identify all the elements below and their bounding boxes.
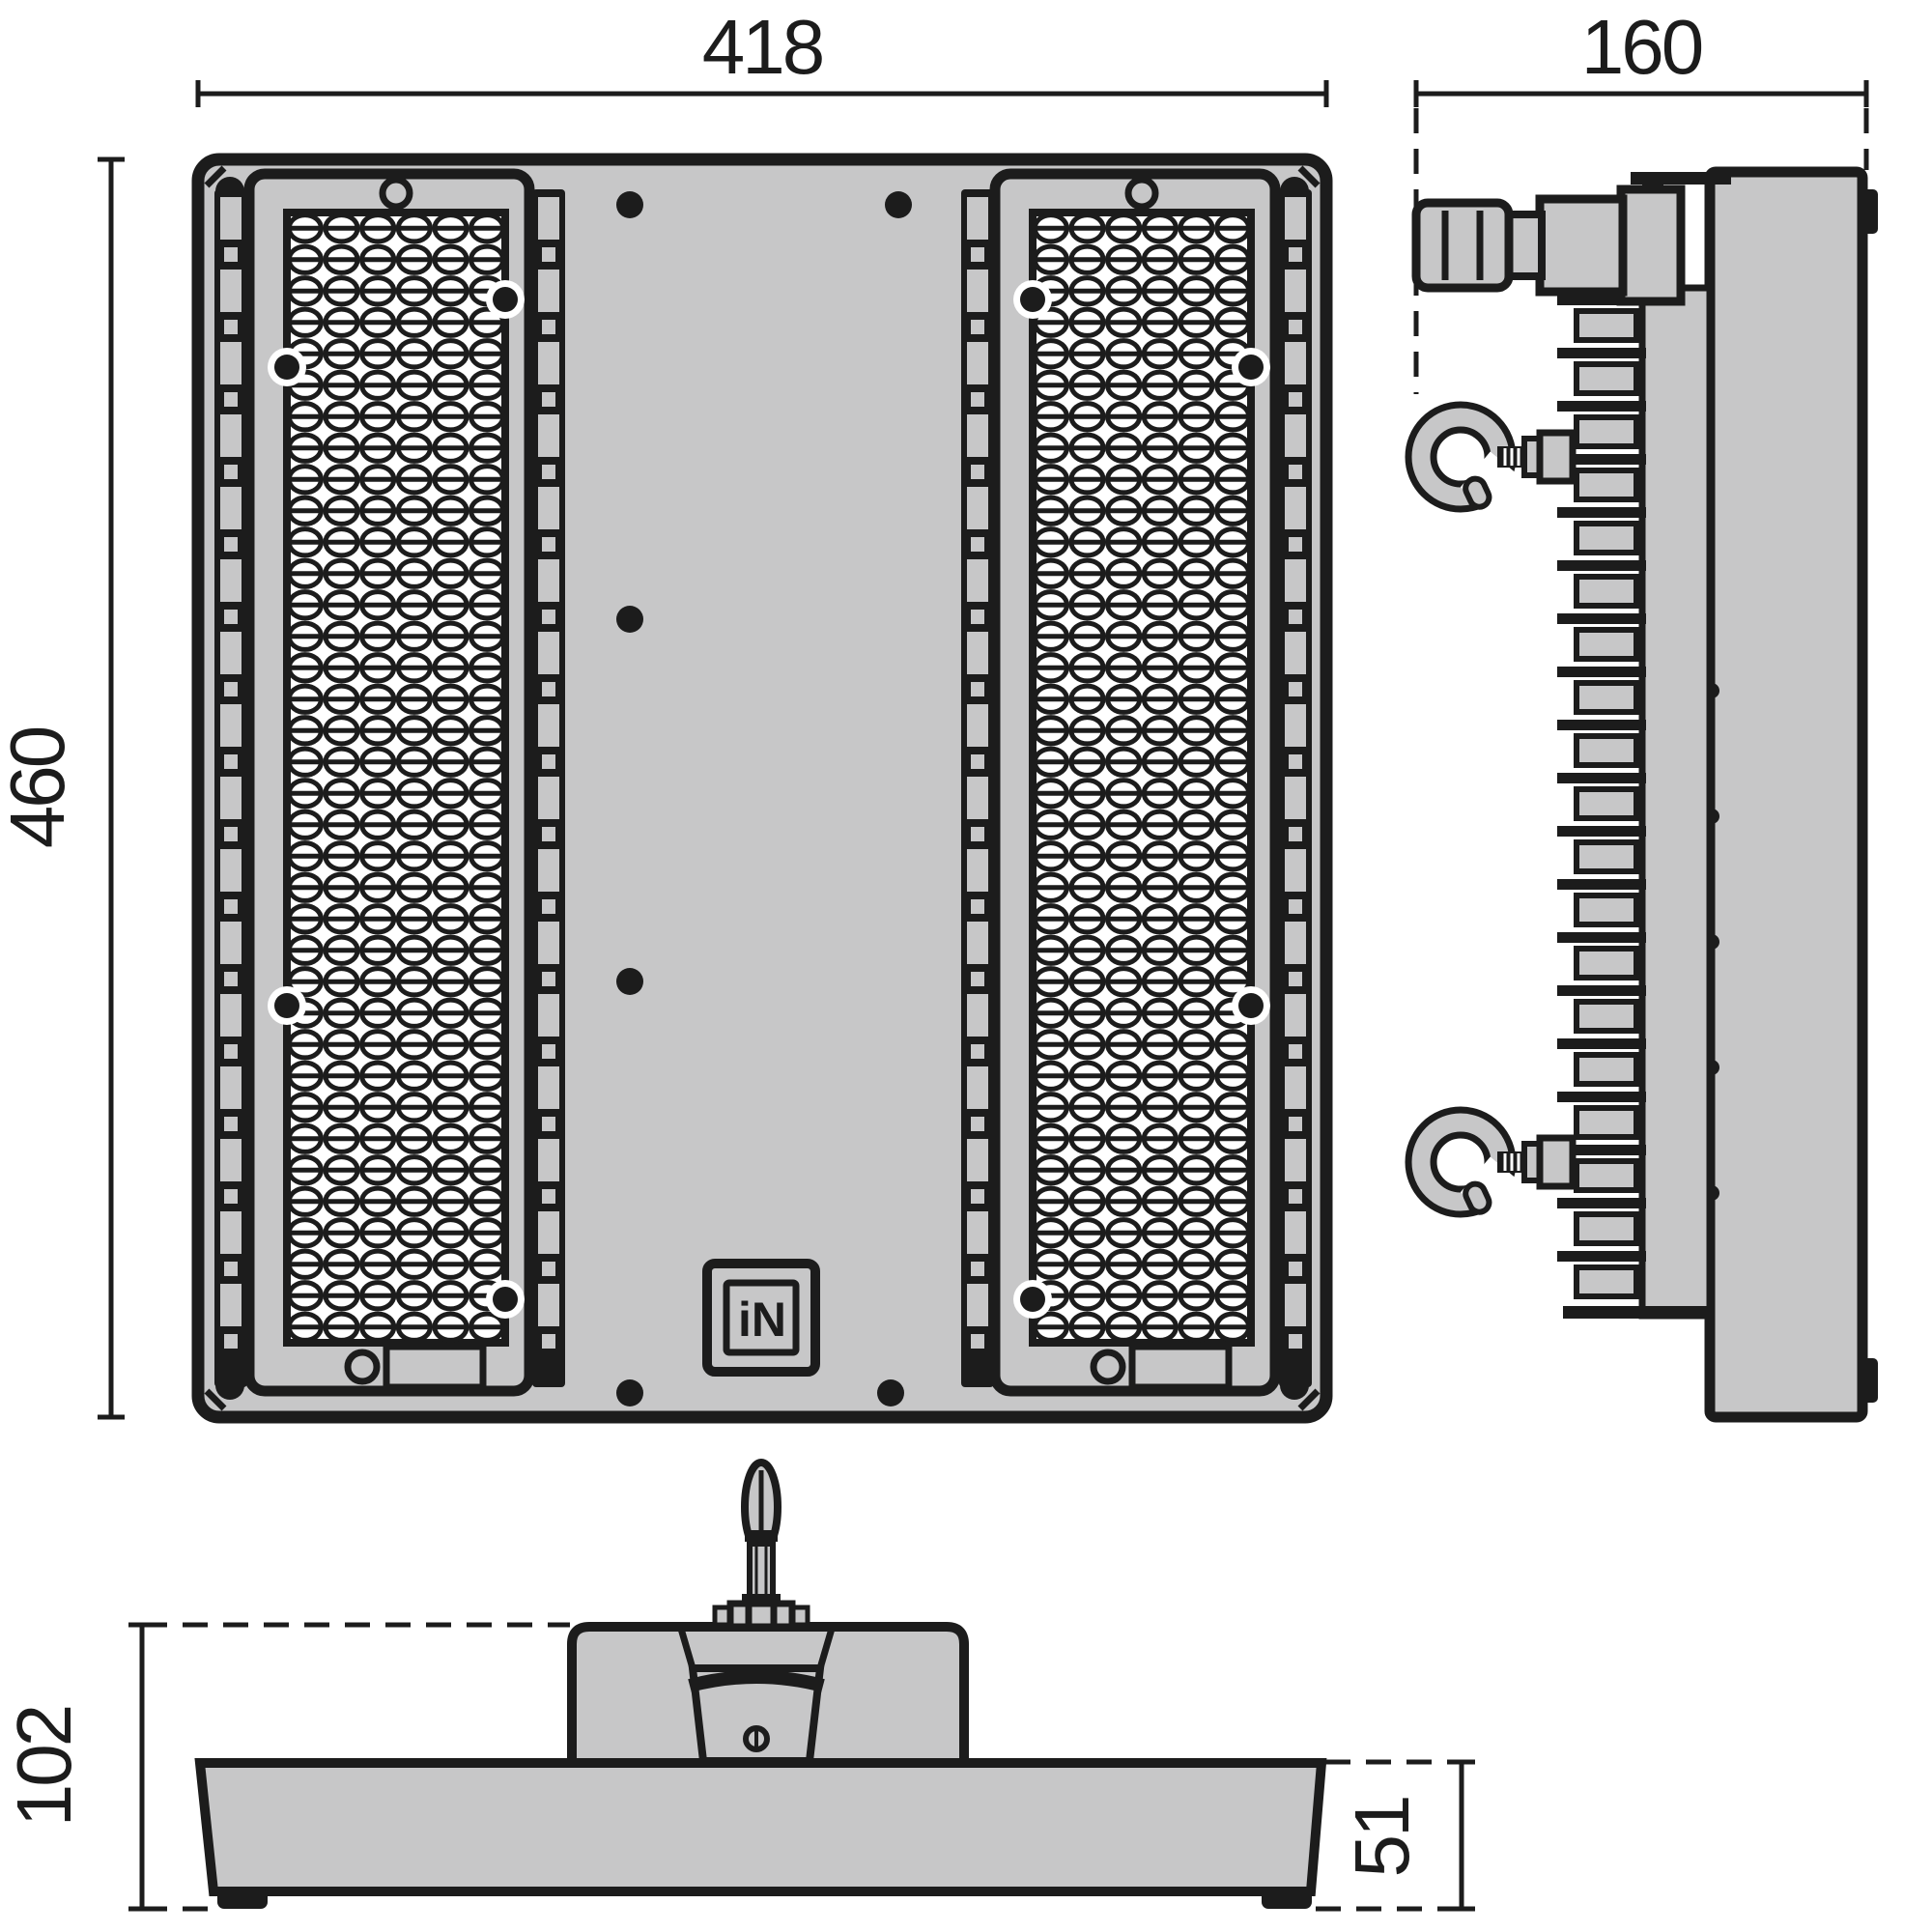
fin xyxy=(1557,348,1646,358)
rail-clip-small xyxy=(1289,320,1302,334)
gland-nut xyxy=(1416,203,1509,288)
side-tab-bottom xyxy=(1859,1358,1878,1403)
rail-clip-small xyxy=(1289,754,1302,769)
rail-clip xyxy=(1285,994,1306,1037)
rail-clip-small xyxy=(542,1117,555,1131)
rail-clip-small xyxy=(1289,1117,1302,1131)
dim-profile-body-height: 51 xyxy=(1316,1762,1475,1909)
fin xyxy=(1557,720,1646,730)
profile-body xyxy=(200,1763,1321,1891)
rail-clip-small xyxy=(1289,610,1302,624)
fin-block xyxy=(1577,470,1636,499)
module-top-hole xyxy=(1128,180,1155,207)
eyebolt-collar xyxy=(745,1530,778,1542)
rail-clip-small xyxy=(224,1262,238,1276)
dim-label-418: 418 xyxy=(702,4,823,90)
rail-clip xyxy=(538,1139,559,1181)
rail-clip-small xyxy=(1289,682,1302,696)
rail-clip-small xyxy=(1289,392,1302,407)
rail-clip xyxy=(967,994,988,1037)
fin xyxy=(1557,1251,1646,1262)
rail-clip-small xyxy=(542,972,555,986)
rail-clip-small xyxy=(971,392,984,407)
rail-clip xyxy=(967,1139,988,1181)
dim-label-102: 102 xyxy=(1,1707,87,1827)
rail-clip xyxy=(538,197,559,240)
fin xyxy=(1557,1198,1646,1208)
fin-block xyxy=(1577,1214,1636,1243)
dim-label-160: 160 xyxy=(1581,4,1702,90)
rail-clip xyxy=(1285,270,1306,312)
rail-clip-small xyxy=(971,827,984,841)
rail-clip xyxy=(1285,849,1306,892)
side-body xyxy=(1710,172,1862,1417)
rail-clip-small xyxy=(542,610,555,624)
rail-clip xyxy=(538,1284,559,1326)
rail-clip-small xyxy=(224,392,238,407)
eyebolt-shank xyxy=(750,1544,773,1600)
rail-clip xyxy=(967,1211,988,1254)
rail-clip xyxy=(1285,342,1306,384)
rail-clip xyxy=(220,414,241,457)
dim-line-51 xyxy=(1448,1762,1475,1909)
rail-clip-small xyxy=(971,972,984,986)
rail-clip xyxy=(1285,1284,1306,1326)
rail-clip-small xyxy=(224,320,238,334)
fin-block xyxy=(1577,524,1636,553)
rail-clip xyxy=(1285,1211,1306,1254)
rail-clip xyxy=(220,1211,241,1254)
rail-clip-small xyxy=(542,682,555,696)
fin-block xyxy=(1577,789,1636,818)
rail-clip-small xyxy=(1289,1189,1302,1204)
rail-clip-small xyxy=(971,1334,984,1349)
technical-drawing: 418 460 xyxy=(0,0,1932,1932)
rail-clip-small xyxy=(971,247,984,262)
eyebolt-nut xyxy=(730,1604,792,1627)
fin-block xyxy=(1577,577,1636,606)
rail-clip xyxy=(1285,1139,1306,1181)
rail-clip-small xyxy=(542,1189,555,1204)
gland-plate xyxy=(1621,189,1681,301)
dim-front-width: 418 xyxy=(198,4,1326,107)
rail-clip xyxy=(538,849,559,892)
fin-block xyxy=(1577,311,1636,340)
fin-block xyxy=(1577,417,1636,446)
profile-foot-right xyxy=(1262,1889,1312,1909)
side-view: 160 xyxy=(1408,4,1878,1417)
fin-block xyxy=(1577,364,1636,393)
rail-clip-small xyxy=(1289,899,1302,914)
rail-clip-small xyxy=(542,392,555,407)
rail-clip-small xyxy=(224,537,238,552)
rail-clip-small xyxy=(542,899,555,914)
rail-clip-small xyxy=(971,537,984,552)
rail-clip xyxy=(967,704,988,747)
fin-block xyxy=(1577,683,1636,712)
fin-block xyxy=(1577,1267,1636,1296)
front-view: 418 460 xyxy=(0,4,1326,1417)
cable-gland xyxy=(1416,178,1681,301)
fin xyxy=(1557,613,1646,624)
module-bottom-plate xyxy=(386,1347,483,1387)
rail-clip xyxy=(220,342,241,384)
module-bottom-hole xyxy=(1094,1352,1122,1381)
rail-clip-small xyxy=(971,899,984,914)
rail-clip-small xyxy=(542,1262,555,1276)
rail-clip-small xyxy=(971,1262,984,1276)
rail-clip-small xyxy=(224,1117,238,1131)
profile-foot-left xyxy=(217,1889,268,1909)
rail-clip xyxy=(967,1066,988,1109)
led-module-right xyxy=(995,174,1275,1391)
fin-block xyxy=(1577,1161,1636,1190)
rail-clip-small xyxy=(971,754,984,769)
fin xyxy=(1557,826,1646,837)
rail-clip xyxy=(220,849,241,892)
rail-clip-small xyxy=(224,972,238,986)
rail-clip xyxy=(967,487,988,529)
rail-clip xyxy=(220,197,241,240)
rail-clip-small xyxy=(542,537,555,552)
rail-clip xyxy=(220,632,241,674)
rail-clip-small xyxy=(224,610,238,624)
rail-clip xyxy=(1285,487,1306,529)
logo-text: iN xyxy=(738,1293,786,1347)
rail-clip xyxy=(220,1284,241,1326)
rail-clip xyxy=(538,487,559,529)
rail-clip-small xyxy=(542,754,555,769)
rail-clip xyxy=(538,994,559,1037)
dim-label-51: 51 xyxy=(1339,1798,1425,1878)
hook-nut xyxy=(1540,433,1573,481)
rail-clip xyxy=(967,849,988,892)
rail-clip-small xyxy=(971,1117,984,1131)
heatsink-bottom-cap xyxy=(1563,1306,1710,1319)
fin xyxy=(1557,879,1646,890)
fin xyxy=(1557,401,1646,412)
eye-hook xyxy=(1408,405,1573,516)
fin xyxy=(1557,667,1646,677)
rail-clip-small xyxy=(1289,537,1302,552)
fin xyxy=(1557,932,1646,943)
rail-clip xyxy=(538,777,559,819)
rail-clip xyxy=(1285,922,1306,964)
rail-clip xyxy=(967,922,988,964)
side-tab-top xyxy=(1859,189,1878,234)
heatsink-channel xyxy=(1642,288,1710,1316)
rail-clip-small xyxy=(542,1334,555,1349)
bottom-profile-view: 102 xyxy=(1,1463,1475,1909)
rail-clip-small xyxy=(224,899,238,914)
rail-clip-small xyxy=(971,465,984,479)
rail-clip-small xyxy=(224,247,238,262)
rail-clip xyxy=(967,342,988,384)
rail-clip xyxy=(538,414,559,457)
rail-clip-small xyxy=(224,754,238,769)
rail-clip-small xyxy=(1289,972,1302,986)
fin xyxy=(1557,1092,1646,1102)
rail-clip xyxy=(967,197,988,240)
module-bottom-hole xyxy=(348,1352,377,1381)
rail-clip-small xyxy=(224,682,238,696)
rail-clip xyxy=(538,1211,559,1254)
drawing-page: 418 460 xyxy=(0,0,1932,1932)
dim-line-102 xyxy=(128,1625,156,1909)
rail-clip xyxy=(220,922,241,964)
rail-clip xyxy=(1285,777,1306,819)
rail-clip xyxy=(538,922,559,964)
gland-nub xyxy=(1642,178,1663,189)
rail-clip-small xyxy=(1289,1334,1302,1349)
module-top-hole xyxy=(383,180,410,207)
dim-line-460 xyxy=(98,159,125,1417)
rail-clip-small xyxy=(224,1334,238,1349)
rail-clip xyxy=(967,559,988,602)
rail-clip-small xyxy=(224,1044,238,1059)
rail-clip-small xyxy=(971,1044,984,1059)
dim-front-height: 460 xyxy=(0,159,125,1417)
rail-clip-small xyxy=(1289,465,1302,479)
rail-clip-small xyxy=(542,465,555,479)
eyebolt-stud xyxy=(715,1463,808,1627)
rail-clip xyxy=(220,487,241,529)
rail-clip xyxy=(220,559,241,602)
eye-hook xyxy=(1408,1110,1573,1221)
rail-clip xyxy=(538,559,559,602)
rail-clip xyxy=(967,1284,988,1326)
rail-clip xyxy=(1285,704,1306,747)
rail-clip xyxy=(1285,559,1306,602)
gland-body xyxy=(1540,199,1623,292)
rail-clip xyxy=(967,414,988,457)
rail-clip xyxy=(220,1066,241,1109)
rail-clip xyxy=(220,1139,241,1181)
rail-clip-small xyxy=(224,1189,238,1204)
rail-clip-small xyxy=(971,1189,984,1204)
rail-clip-small xyxy=(542,827,555,841)
rail-clip xyxy=(967,777,988,819)
rail-clip-small xyxy=(971,320,984,334)
fin-block xyxy=(1577,895,1636,924)
led-module-left xyxy=(249,174,529,1391)
dim-label-460: 460 xyxy=(0,727,80,848)
rail-clip xyxy=(967,632,988,674)
rail-clip-small xyxy=(542,320,555,334)
fin xyxy=(1557,560,1646,571)
module-bottom-plate xyxy=(1132,1347,1229,1387)
rail-clip-small xyxy=(971,682,984,696)
fin xyxy=(1557,1038,1646,1049)
rail-clip-small xyxy=(542,247,555,262)
rail-clip-small xyxy=(224,827,238,841)
rail-clip xyxy=(538,270,559,312)
fin xyxy=(1557,507,1646,518)
rail-clip-small xyxy=(1289,247,1302,262)
fin-block xyxy=(1577,1055,1636,1084)
fin-block xyxy=(1577,1108,1636,1137)
rail-clip-small xyxy=(971,610,984,624)
rail-clip xyxy=(1285,197,1306,240)
rail-clip xyxy=(1285,414,1306,457)
rail-clip-small xyxy=(1289,1262,1302,1276)
rail-clip-small xyxy=(1289,1044,1302,1059)
fin-block xyxy=(1577,736,1636,765)
fin xyxy=(1557,773,1646,783)
rail-clip xyxy=(538,342,559,384)
fin xyxy=(1557,985,1646,996)
rail-clip xyxy=(220,270,241,312)
rail-clip xyxy=(220,994,241,1037)
rail-clip xyxy=(538,632,559,674)
rail-clip-small xyxy=(1289,827,1302,841)
rail-clip xyxy=(220,704,241,747)
fin-block xyxy=(1577,1002,1636,1031)
fin-block xyxy=(1577,842,1636,871)
rail-clip xyxy=(1285,1066,1306,1109)
rail-clip xyxy=(220,777,241,819)
fin-block xyxy=(1577,630,1636,659)
rail-clip xyxy=(538,704,559,747)
rail-clip xyxy=(538,1066,559,1109)
rail-clip xyxy=(967,270,988,312)
rail-clip-small xyxy=(224,465,238,479)
rail-clip xyxy=(1285,632,1306,674)
fin-block xyxy=(1577,949,1636,978)
rail-clip-small xyxy=(542,1044,555,1059)
